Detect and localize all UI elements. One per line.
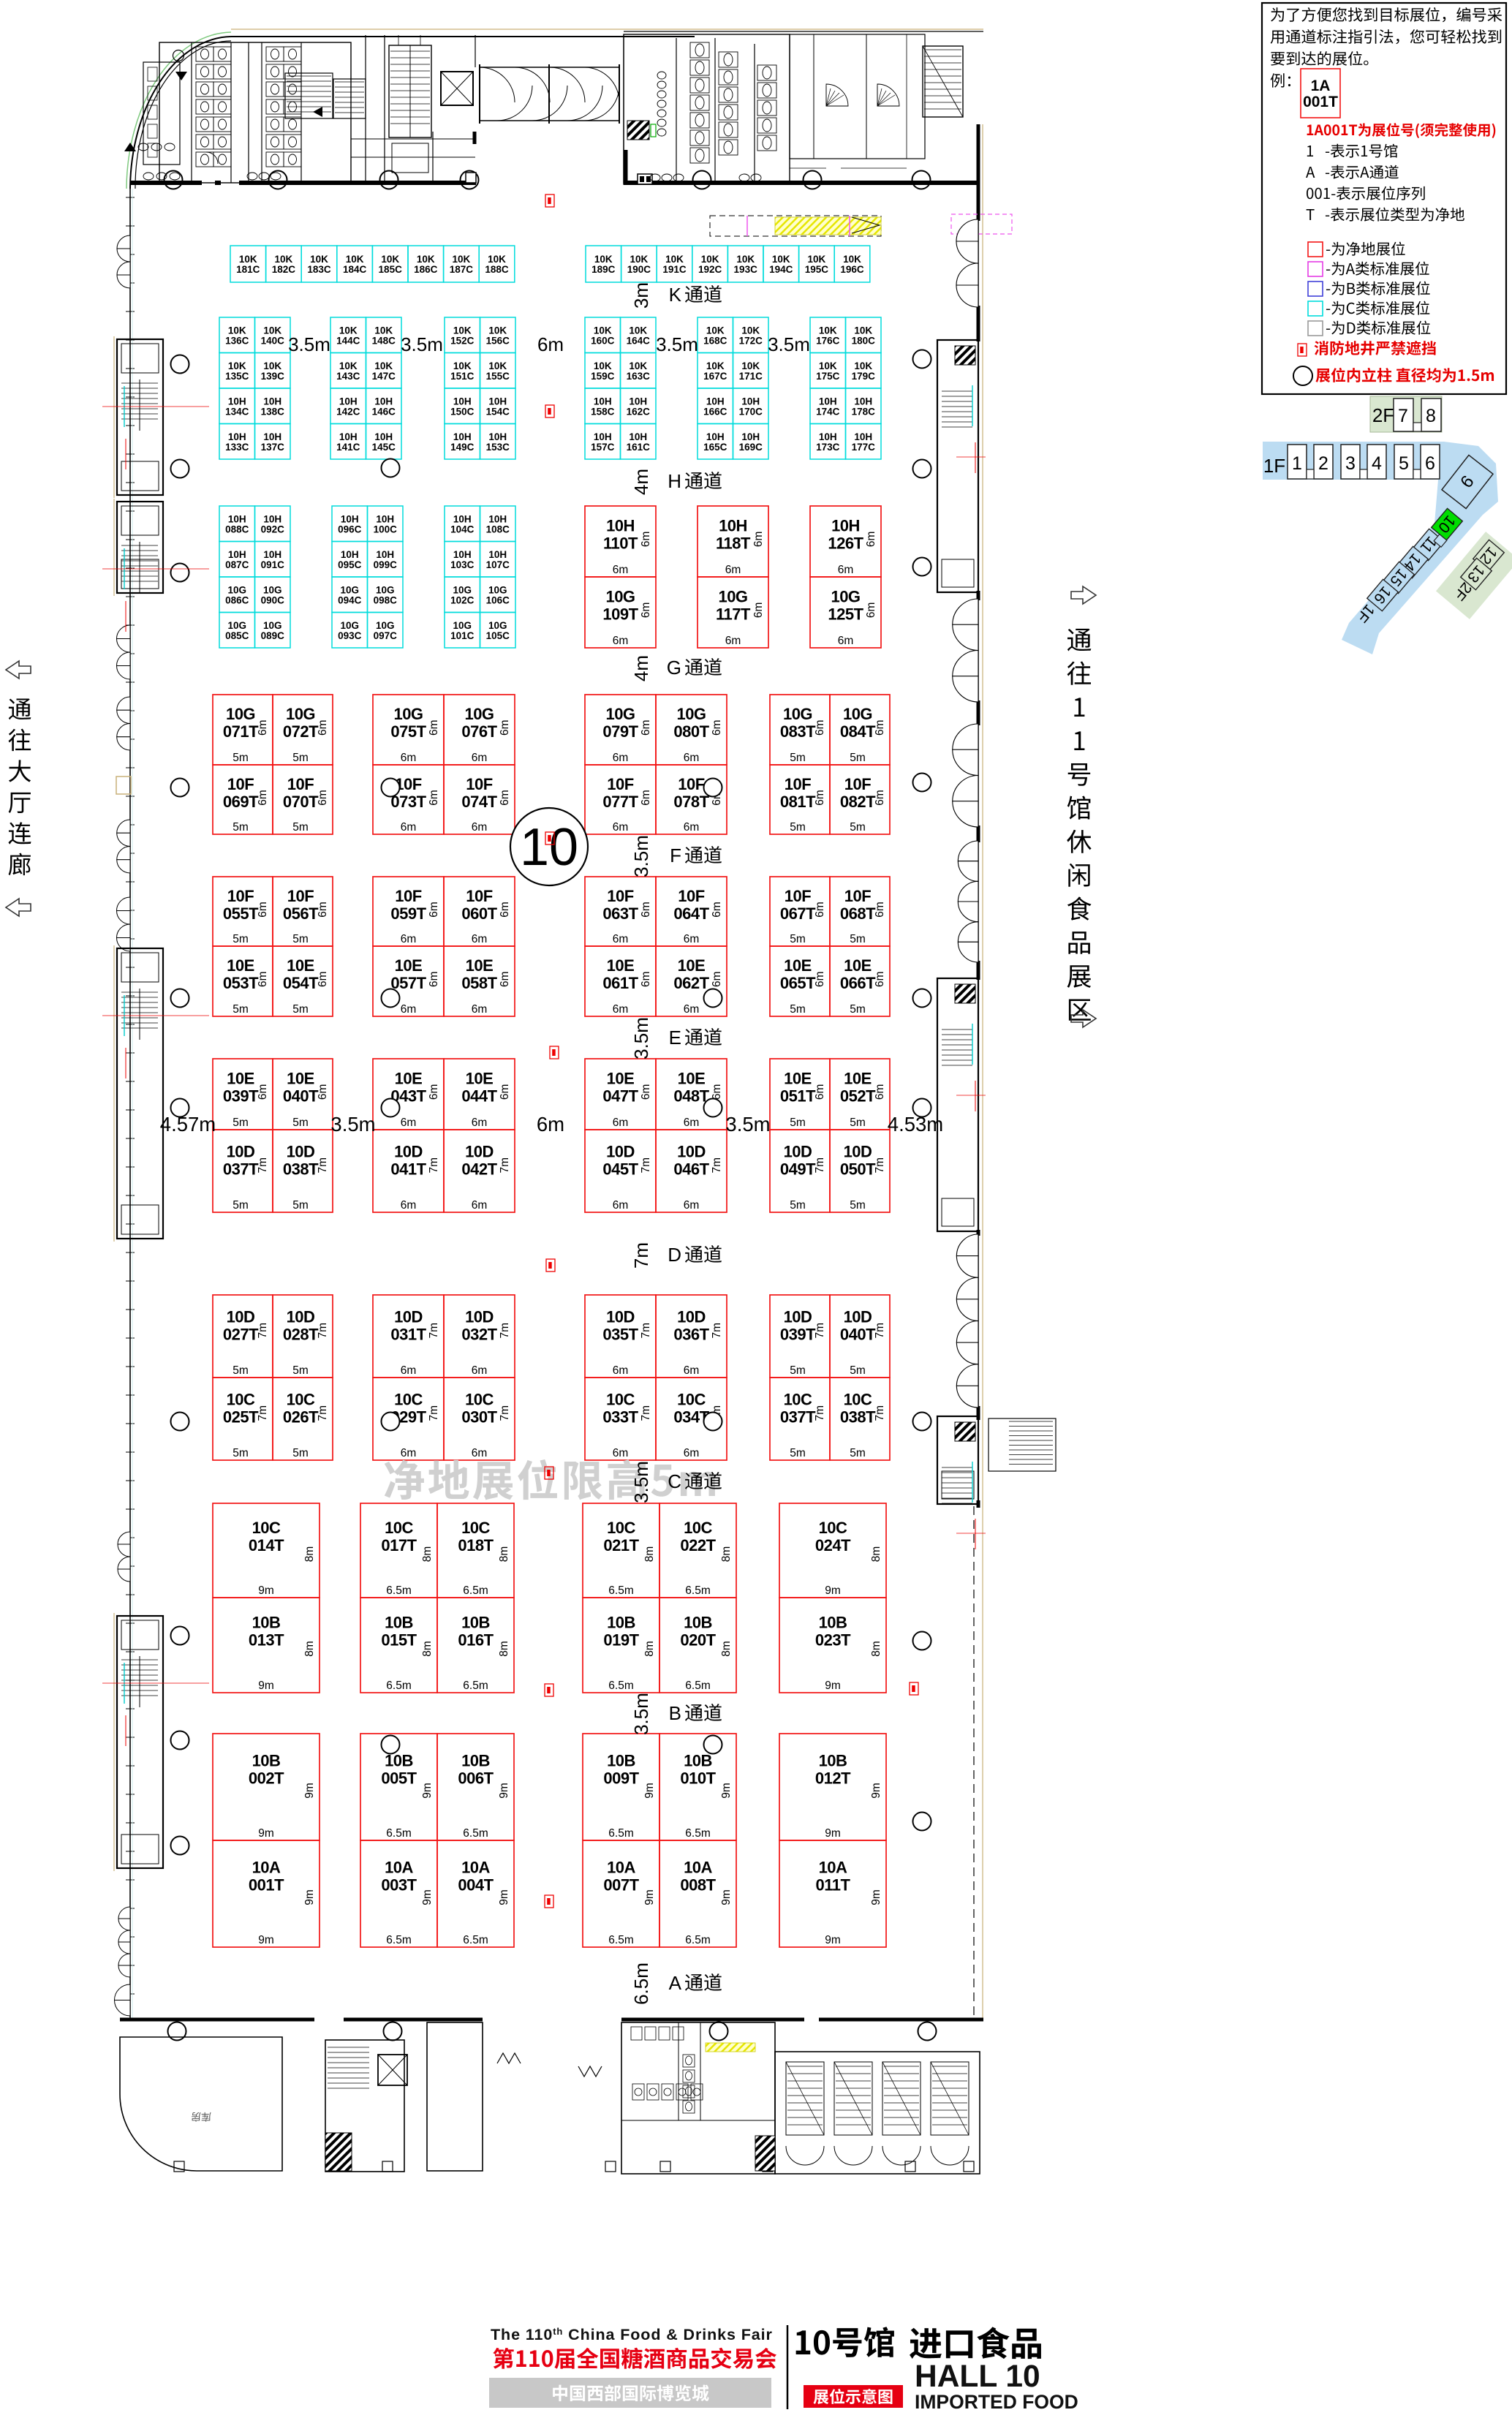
svg-text:175C: 175C bbox=[816, 371, 840, 382]
svg-text:062T: 062T bbox=[673, 974, 709, 992]
svg-text:10G: 10G bbox=[340, 620, 359, 631]
svg-text:126T: 126T bbox=[828, 534, 863, 552]
svg-text:5m: 5m bbox=[292, 1003, 309, 1016]
svg-text:10B: 10B bbox=[461, 1752, 490, 1770]
svg-text:10K: 10K bbox=[701, 254, 719, 265]
svg-text:189C: 189C bbox=[591, 264, 616, 275]
svg-text:10K: 10K bbox=[488, 325, 507, 336]
svg-text:10E: 10E bbox=[466, 956, 494, 975]
svg-text:184C: 184C bbox=[343, 264, 367, 275]
svg-text:10E: 10E bbox=[466, 1069, 494, 1087]
svg-text:9m: 9m bbox=[643, 1889, 656, 1905]
svg-text:4.57m: 4.57m bbox=[160, 1113, 216, 1136]
svg-text:146C: 146C bbox=[372, 406, 396, 417]
svg-text:10C: 10C bbox=[227, 1391, 255, 1409]
svg-text:10G: 10G bbox=[340, 584, 359, 595]
svg-text:171C: 171C bbox=[739, 371, 763, 382]
svg-text:3: 3 bbox=[1345, 453, 1356, 474]
svg-text:3m: 3m bbox=[630, 282, 652, 309]
svg-text:7: 7 bbox=[1398, 406, 1408, 426]
svg-text:10H: 10H bbox=[339, 396, 358, 407]
svg-text:046T: 046T bbox=[673, 1160, 709, 1179]
svg-text:10: 10 bbox=[520, 818, 578, 877]
svg-text:5m: 5m bbox=[292, 821, 309, 834]
svg-text:001T: 001T bbox=[249, 1876, 284, 1894]
svg-text:10H: 10H bbox=[453, 431, 472, 442]
svg-text:7m: 7m bbox=[711, 1323, 723, 1339]
svg-text:163C: 163C bbox=[627, 371, 651, 382]
svg-text:10K: 10K bbox=[629, 325, 647, 336]
svg-text:10G: 10G bbox=[376, 584, 395, 595]
svg-text:10H: 10H bbox=[488, 396, 507, 407]
svg-text:081T: 081T bbox=[780, 793, 816, 811]
svg-text:10H: 10H bbox=[831, 516, 860, 534]
svg-text:170C: 170C bbox=[739, 406, 763, 417]
svg-text:061T: 061T bbox=[602, 974, 638, 992]
svg-text:079T: 079T bbox=[602, 722, 638, 741]
svg-text:6.5m: 6.5m bbox=[608, 1827, 633, 1840]
svg-text:10C: 10C bbox=[287, 1391, 315, 1409]
svg-text:6m: 6m bbox=[428, 719, 440, 736]
svg-text:10K: 10K bbox=[843, 254, 861, 265]
svg-text:038T: 038T bbox=[283, 1160, 319, 1179]
svg-text:6m: 6m bbox=[401, 821, 417, 834]
svg-text:10H: 10H bbox=[594, 396, 612, 407]
svg-text:10C: 10C bbox=[819, 1519, 847, 1537]
svg-text:6m: 6m bbox=[814, 971, 826, 987]
svg-text:10G: 10G bbox=[227, 584, 246, 595]
svg-text:8m: 8m bbox=[720, 1641, 733, 1657]
svg-text:8m: 8m bbox=[421, 1641, 434, 1657]
svg-text:10G: 10G bbox=[286, 705, 315, 723]
svg-text:135C: 135C bbox=[225, 371, 249, 382]
svg-text:10G: 10G bbox=[488, 584, 507, 595]
svg-text:137C: 137C bbox=[261, 442, 285, 453]
svg-text:10H: 10H bbox=[854, 431, 872, 442]
svg-text:10B: 10B bbox=[684, 1613, 712, 1631]
svg-text:9m: 9m bbox=[303, 1889, 316, 1905]
svg-text:7m: 7m bbox=[814, 1157, 826, 1174]
svg-text:085C: 085C bbox=[225, 630, 249, 641]
svg-text:169C: 169C bbox=[739, 442, 763, 453]
svg-text:019T: 019T bbox=[603, 1631, 639, 1649]
svg-text:6m: 6m bbox=[472, 1003, 488, 1016]
svg-text:7m: 7m bbox=[428, 1157, 440, 1174]
svg-text:6m: 6m bbox=[725, 635, 741, 647]
svg-text:5m: 5m bbox=[850, 752, 866, 764]
svg-text:6m: 6m bbox=[640, 971, 652, 987]
svg-text:179C: 179C bbox=[852, 371, 876, 382]
svg-text:10K: 10K bbox=[417, 254, 435, 265]
svg-text:3.5m: 3.5m bbox=[630, 1017, 652, 1059]
svg-text:10F: 10F bbox=[287, 887, 314, 905]
svg-text:10K: 10K bbox=[381, 254, 399, 265]
svg-text:7m: 7m bbox=[257, 1405, 269, 1421]
svg-text:10G: 10G bbox=[843, 705, 872, 723]
svg-text:4: 4 bbox=[1372, 453, 1382, 474]
svg-text:10H: 10H bbox=[453, 396, 472, 407]
svg-text:148C: 148C bbox=[372, 335, 396, 346]
svg-text:10E: 10E bbox=[227, 956, 254, 975]
svg-text:6m: 6m bbox=[401, 1003, 417, 1016]
svg-text:194C: 194C bbox=[769, 264, 793, 275]
svg-text:10B: 10B bbox=[252, 1613, 281, 1631]
svg-text:8m: 8m bbox=[303, 1641, 316, 1657]
svg-text:10K: 10K bbox=[594, 254, 613, 265]
svg-text:10G: 10G bbox=[488, 620, 507, 631]
svg-text:10K: 10K bbox=[263, 325, 281, 336]
svg-text:152C: 152C bbox=[450, 335, 475, 346]
svg-text:037T: 037T bbox=[223, 1160, 259, 1179]
svg-text:074T: 074T bbox=[461, 793, 497, 811]
svg-text:9m: 9m bbox=[258, 1827, 274, 1840]
svg-text:9m: 9m bbox=[825, 1827, 841, 1840]
svg-text:10G: 10G bbox=[783, 705, 812, 723]
svg-text:195C: 195C bbox=[805, 264, 829, 275]
svg-text:181C: 181C bbox=[236, 264, 260, 275]
svg-text:5: 5 bbox=[1399, 453, 1409, 474]
svg-text:093C: 093C bbox=[338, 630, 362, 641]
svg-text:10B: 10B bbox=[385, 1613, 413, 1631]
svg-text:144C: 144C bbox=[336, 335, 360, 346]
svg-text:5m: 5m bbox=[292, 1447, 309, 1459]
svg-text:10C: 10C bbox=[461, 1519, 490, 1537]
svg-text:6m: 6m bbox=[472, 1199, 488, 1212]
svg-text:5m: 5m bbox=[233, 1447, 249, 1459]
svg-text:102C: 102C bbox=[450, 594, 475, 605]
svg-text:078T: 078T bbox=[673, 793, 709, 811]
svg-text:090C: 090C bbox=[261, 594, 285, 605]
svg-text:10F: 10F bbox=[844, 887, 871, 905]
svg-text:6m: 6m bbox=[428, 1084, 440, 1100]
svg-text:10H: 10H bbox=[629, 431, 647, 442]
svg-text:159C: 159C bbox=[591, 371, 615, 382]
svg-text:10K: 10K bbox=[488, 254, 506, 265]
svg-text:E: E bbox=[669, 1027, 681, 1049]
svg-text:149C: 149C bbox=[450, 442, 475, 453]
svg-text:10A: 10A bbox=[819, 1859, 847, 1877]
svg-text:076T: 076T bbox=[461, 722, 497, 741]
svg-text:103C: 103C bbox=[450, 559, 475, 570]
svg-text:154C: 154C bbox=[486, 406, 510, 417]
svg-text:6m: 6m bbox=[838, 564, 854, 576]
svg-text:5m: 5m bbox=[850, 1117, 866, 1129]
svg-text:10F: 10F bbox=[785, 775, 811, 793]
svg-text:2: 2 bbox=[1318, 453, 1328, 474]
svg-text:10D: 10D bbox=[606, 1308, 635, 1326]
svg-text:10B: 10B bbox=[684, 1752, 712, 1770]
svg-text:6m: 6m bbox=[537, 333, 564, 355]
svg-text:10G: 10G bbox=[464, 705, 494, 723]
svg-text:7m: 7m bbox=[317, 1405, 329, 1421]
svg-text:164C: 164C bbox=[627, 335, 651, 346]
svg-text:026T: 026T bbox=[283, 1408, 319, 1427]
svg-text:10H: 10H bbox=[629, 396, 647, 407]
svg-text:10K: 10K bbox=[706, 325, 725, 336]
svg-text:5m: 5m bbox=[790, 1364, 806, 1377]
svg-text:133C: 133C bbox=[225, 442, 249, 453]
svg-text:D: D bbox=[668, 1244, 681, 1266]
svg-text:025T: 025T bbox=[223, 1408, 259, 1427]
svg-text:10E: 10E bbox=[784, 1069, 812, 1087]
svg-text:6m: 6m bbox=[472, 933, 488, 945]
svg-text:142C: 142C bbox=[336, 406, 360, 417]
svg-text:005T: 005T bbox=[381, 1769, 417, 1788]
svg-text:10C: 10C bbox=[844, 1391, 872, 1409]
svg-text:5m: 5m bbox=[850, 1364, 866, 1377]
svg-text:10D: 10D bbox=[844, 1308, 872, 1326]
svg-text:6m: 6m bbox=[401, 1364, 417, 1377]
svg-text:7m: 7m bbox=[640, 1405, 652, 1421]
svg-text:10H: 10H bbox=[376, 549, 394, 560]
svg-text:044T: 044T bbox=[461, 1087, 497, 1105]
svg-text:088C: 088C bbox=[225, 524, 249, 534]
svg-text:7m: 7m bbox=[257, 1157, 269, 1174]
svg-text:6m: 6m bbox=[684, 821, 700, 834]
svg-text:196C: 196C bbox=[840, 264, 864, 275]
svg-text:086C: 086C bbox=[225, 594, 249, 605]
svg-text:071T: 071T bbox=[223, 722, 259, 741]
svg-text:150C: 150C bbox=[450, 406, 475, 417]
svg-text:9m: 9m bbox=[870, 1783, 882, 1799]
svg-text:6m: 6m bbox=[401, 1117, 417, 1129]
svg-text:6m: 6m bbox=[684, 1364, 700, 1377]
svg-text:10K: 10K bbox=[275, 254, 293, 265]
svg-text:6m: 6m bbox=[684, 1003, 700, 1016]
svg-text:9m: 9m bbox=[421, 1783, 434, 1799]
svg-text:117T: 117T bbox=[716, 605, 751, 623]
svg-text:007T: 007T bbox=[603, 1876, 639, 1894]
svg-text:10K: 10K bbox=[854, 325, 872, 336]
svg-text:8m: 8m bbox=[498, 1641, 510, 1657]
svg-text:177C: 177C bbox=[852, 442, 876, 453]
svg-text:035T: 035T bbox=[602, 1326, 638, 1344]
svg-text:5m: 5m bbox=[850, 1447, 866, 1459]
svg-text:6.5m: 6.5m bbox=[386, 1680, 411, 1692]
svg-text:004T: 004T bbox=[458, 1876, 494, 1894]
svg-text:6m: 6m bbox=[499, 790, 511, 806]
svg-text:6m: 6m bbox=[874, 1084, 886, 1100]
svg-text:7m: 7m bbox=[428, 1323, 440, 1339]
svg-text:10A: 10A bbox=[252, 1859, 281, 1877]
svg-text:10E: 10E bbox=[227, 1069, 254, 1087]
svg-text:10G: 10G bbox=[605, 587, 635, 605]
svg-text:033T: 033T bbox=[602, 1408, 638, 1427]
svg-text:6m: 6m bbox=[711, 902, 723, 918]
svg-text:006T: 006T bbox=[458, 1769, 494, 1788]
svg-text:10D: 10D bbox=[606, 1143, 635, 1161]
svg-text:5m: 5m bbox=[233, 1199, 249, 1212]
svg-text:6m: 6m bbox=[401, 1199, 417, 1212]
svg-text:5m: 5m bbox=[790, 821, 806, 834]
svg-text:10H: 10H bbox=[228, 431, 246, 442]
svg-text:6m: 6m bbox=[814, 1084, 826, 1100]
svg-text:5m: 5m bbox=[233, 933, 249, 945]
svg-text:082T: 082T bbox=[840, 793, 876, 811]
svg-text:6m: 6m bbox=[874, 902, 886, 918]
svg-text:110T: 110T bbox=[603, 534, 638, 552]
svg-text:015T: 015T bbox=[381, 1631, 417, 1649]
svg-text:10B: 10B bbox=[819, 1752, 847, 1770]
svg-text:083T: 083T bbox=[780, 722, 816, 741]
svg-text:3.5m: 3.5m bbox=[656, 333, 698, 355]
svg-text:10B: 10B bbox=[607, 1613, 635, 1631]
svg-text:10G: 10G bbox=[676, 705, 706, 723]
svg-text:6.5m: 6.5m bbox=[630, 1962, 652, 2005]
svg-text:051T: 051T bbox=[780, 1087, 816, 1105]
svg-text:9m: 9m bbox=[720, 1889, 733, 1905]
svg-text:10K: 10K bbox=[854, 360, 872, 371]
svg-text:057T: 057T bbox=[390, 974, 426, 992]
svg-text:10D: 10D bbox=[844, 1143, 872, 1161]
svg-text:017T: 017T bbox=[381, 1536, 417, 1554]
svg-text:9m: 9m bbox=[258, 1680, 274, 1692]
svg-text:6m: 6m bbox=[537, 1113, 564, 1136]
svg-text:7m: 7m bbox=[874, 1157, 886, 1174]
svg-text:011T: 011T bbox=[816, 1876, 851, 1894]
svg-text:9m: 9m bbox=[258, 1934, 274, 1946]
svg-text:8m: 8m bbox=[870, 1641, 882, 1657]
svg-text:10K: 10K bbox=[665, 254, 684, 265]
svg-text:10K: 10K bbox=[453, 254, 471, 265]
svg-text:10H: 10H bbox=[488, 431, 507, 442]
svg-text:10K: 10K bbox=[339, 325, 358, 336]
svg-text:2F: 2F bbox=[1372, 404, 1394, 426]
svg-text:10K: 10K bbox=[819, 360, 837, 371]
svg-text:10H: 10H bbox=[341, 549, 359, 560]
svg-text:191C: 191C bbox=[662, 264, 687, 275]
svg-text:10A: 10A bbox=[461, 1859, 490, 1877]
svg-text:002T: 002T bbox=[249, 1769, 284, 1788]
svg-text:10E: 10E bbox=[607, 956, 635, 975]
svg-text:001T: 001T bbox=[1303, 94, 1338, 110]
svg-text:1: 1 bbox=[1292, 453, 1302, 474]
svg-text:6m: 6m bbox=[613, 933, 629, 945]
svg-text:10H: 10H bbox=[341, 513, 359, 524]
svg-text:6m: 6m bbox=[472, 1447, 488, 1459]
svg-text:10H: 10H bbox=[854, 396, 872, 407]
svg-text:6m: 6m bbox=[640, 602, 652, 619]
svg-text:039T: 039T bbox=[223, 1087, 259, 1105]
svg-text:10G: 10G bbox=[376, 620, 395, 631]
svg-text:10C: 10C bbox=[607, 1519, 635, 1537]
svg-text:165C: 165C bbox=[703, 442, 727, 453]
svg-text:10K: 10K bbox=[488, 360, 507, 371]
svg-text:6m: 6m bbox=[613, 752, 629, 764]
svg-text:167C: 167C bbox=[703, 371, 727, 382]
svg-text:104C: 104C bbox=[450, 524, 475, 534]
svg-text:6m: 6m bbox=[613, 564, 629, 576]
svg-text:10K: 10K bbox=[741, 360, 760, 371]
svg-text:162C: 162C bbox=[627, 406, 651, 417]
svg-text:10D: 10D bbox=[227, 1143, 255, 1161]
svg-text:10K: 10K bbox=[228, 325, 246, 336]
svg-text:6m: 6m bbox=[814, 719, 826, 736]
svg-text:10G: 10G bbox=[718, 587, 747, 605]
svg-text:10K: 10K bbox=[339, 360, 358, 371]
svg-text:125T: 125T bbox=[828, 605, 863, 623]
svg-text:6.5m: 6.5m bbox=[608, 1680, 633, 1692]
svg-text:3.5m: 3.5m bbox=[288, 333, 330, 355]
svg-text:10H: 10H bbox=[706, 396, 725, 407]
svg-text:7m: 7m bbox=[640, 1323, 652, 1339]
svg-text:10D: 10D bbox=[677, 1143, 706, 1161]
svg-text:10C: 10C bbox=[684, 1519, 712, 1537]
svg-text:118T: 118T bbox=[716, 534, 751, 552]
svg-text:098C: 098C bbox=[374, 594, 398, 605]
svg-text:10H: 10H bbox=[374, 396, 393, 407]
svg-text:091C: 091C bbox=[261, 559, 285, 570]
svg-text:072T: 072T bbox=[283, 722, 319, 741]
svg-text:6m: 6m bbox=[752, 602, 765, 619]
svg-text:151C: 151C bbox=[450, 371, 475, 382]
svg-text:7m: 7m bbox=[874, 1323, 886, 1339]
svg-text:6m: 6m bbox=[613, 1003, 629, 1016]
svg-text:186C: 186C bbox=[414, 264, 438, 275]
svg-text:097C: 097C bbox=[374, 630, 398, 641]
svg-text:10C: 10C bbox=[385, 1519, 413, 1537]
svg-text:038T: 038T bbox=[840, 1408, 876, 1427]
svg-text:9m: 9m bbox=[720, 1783, 733, 1799]
svg-text:10K: 10K bbox=[741, 325, 760, 336]
svg-text:193C: 193C bbox=[734, 264, 758, 275]
svg-text:166C: 166C bbox=[703, 406, 727, 417]
svg-text:The 110th China Food & Drinks: The 110th China Food & Drinks Fair bbox=[491, 2326, 773, 2343]
svg-text:8m: 8m bbox=[720, 1546, 733, 1563]
svg-text:C: C bbox=[668, 1470, 681, 1492]
svg-text:IMPORTED FOOD: IMPORTED FOOD bbox=[915, 2391, 1078, 2413]
svg-text:8m: 8m bbox=[870, 1546, 882, 1563]
svg-text:5m: 5m bbox=[850, 1003, 866, 1016]
svg-text:6m: 6m bbox=[401, 1447, 417, 1459]
svg-text:7m: 7m bbox=[317, 1323, 329, 1339]
svg-text:6m: 6m bbox=[874, 719, 886, 736]
svg-text:10D: 10D bbox=[465, 1308, 494, 1326]
svg-text:6m: 6m bbox=[814, 902, 826, 918]
svg-text:6m: 6m bbox=[257, 719, 269, 736]
svg-text:042T: 042T bbox=[461, 1160, 497, 1179]
svg-text:6.5m: 6.5m bbox=[608, 1934, 633, 1946]
svg-text:10D: 10D bbox=[287, 1143, 315, 1161]
svg-text:10K: 10K bbox=[772, 254, 790, 265]
svg-text:5m: 5m bbox=[233, 1003, 249, 1016]
svg-text:185C: 185C bbox=[379, 264, 403, 275]
svg-text:5m: 5m bbox=[292, 1364, 309, 1377]
svg-text:10H: 10H bbox=[228, 513, 246, 524]
svg-text:10K: 10K bbox=[630, 254, 649, 265]
svg-text:3.5m: 3.5m bbox=[768, 333, 810, 355]
svg-text:3.5m: 3.5m bbox=[630, 1461, 652, 1503]
svg-text:040T: 040T bbox=[840, 1326, 876, 1344]
svg-text:6m: 6m bbox=[401, 933, 417, 945]
svg-text:10D: 10D bbox=[394, 1308, 423, 1326]
svg-text:183C: 183C bbox=[307, 264, 331, 275]
svg-text:5m: 5m bbox=[292, 1199, 309, 1212]
svg-text:008T: 008T bbox=[680, 1876, 716, 1894]
svg-text:10K: 10K bbox=[453, 325, 472, 336]
svg-text:8m: 8m bbox=[498, 1546, 510, 1563]
svg-text:10H: 10H bbox=[741, 396, 760, 407]
svg-text:6m: 6m bbox=[613, 1447, 629, 1459]
svg-text:153C: 153C bbox=[486, 442, 510, 453]
svg-text:10D: 10D bbox=[784, 1308, 812, 1326]
svg-text:145C: 145C bbox=[372, 442, 396, 453]
svg-text:6.5m: 6.5m bbox=[685, 1827, 710, 1840]
svg-text:10B: 10B bbox=[607, 1752, 635, 1770]
svg-text:5m: 5m bbox=[292, 1117, 309, 1129]
svg-text:6.5m: 6.5m bbox=[463, 1827, 488, 1840]
svg-text:10F: 10F bbox=[678, 887, 704, 905]
